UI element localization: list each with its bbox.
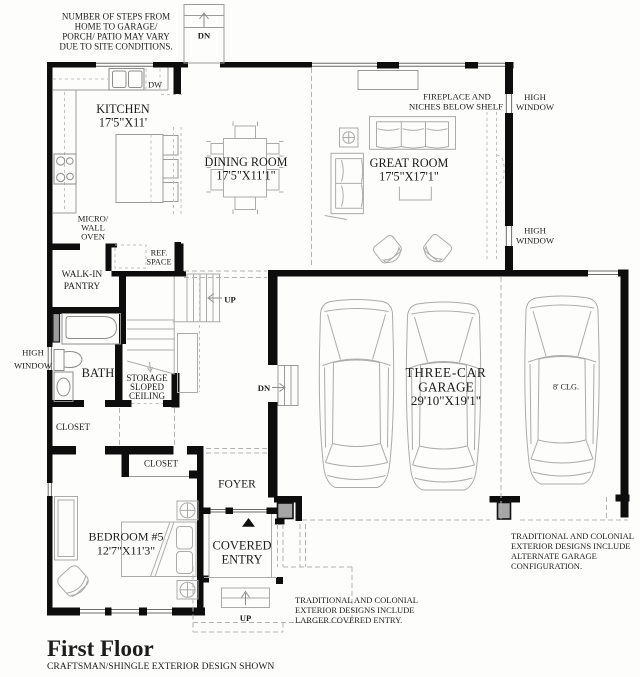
svg-text:HIGH: HIGH [22,348,44,358]
svg-text:DINING ROOM: DINING ROOM [205,155,288,169]
svg-text:17'5"X11': 17'5"X11' [99,116,147,130]
svg-text:GREAT ROOM: GREAT ROOM [370,156,449,170]
svg-text:UP: UP [224,295,235,305]
svg-text:DN: DN [258,383,271,393]
svg-text:SPACE: SPACE [146,258,171,267]
svg-text:WINDOW: WINDOW [516,236,555,246]
svg-text:DN: DN [198,31,211,41]
svg-text:COVERED: COVERED [212,539,271,553]
svg-text:CLOSET: CLOSET [144,459,179,469]
svg-text:17'5"X17'1": 17'5"X17'1" [379,170,439,184]
svg-text:ALTERNATE GARAGE: ALTERNATE GARAGE [511,551,597,561]
svg-text:17'5"X11'1": 17'5"X11'1" [216,169,275,183]
svg-text:LARGER COVERED ENTRY.: LARGER COVERED ENTRY. [295,615,402,625]
svg-text:BEDROOM #5: BEDROOM #5 [88,530,163,544]
svg-text:CONFIGURATION.: CONFIGURATION. [511,561,582,571]
svg-text:DUE TO SITE CONDITIONS.: DUE TO SITE CONDITIONS. [59,42,172,52]
svg-text:First Floor: First Floor [47,636,154,661]
svg-text:8' CLG.: 8' CLG. [553,383,579,392]
svg-text:HIGH: HIGH [524,226,546,236]
svg-text:HIGH: HIGH [524,92,546,102]
svg-text:WINDOW: WINDOW [14,361,53,371]
svg-text:CEILING: CEILING [129,391,165,401]
svg-text:29'10"X19'1": 29'10"X19'1" [411,393,481,408]
svg-text:DW: DW [148,81,162,90]
svg-text:EXTERIOR DESIGNS INCLUDE: EXTERIOR DESIGNS INCLUDE [295,605,414,615]
svg-text:ENTRY: ENTRY [222,553,263,567]
svg-text:OVEN: OVEN [81,232,106,242]
svg-text:CLOSET: CLOSET [56,422,91,432]
svg-text:FIREPLACE AND: FIREPLACE AND [423,92,491,102]
svg-text:NICHES BELOW SHELF: NICHES BELOW SHELF [409,102,503,112]
svg-text:12'7"X11'3": 12'7"X11'3" [97,544,155,558]
svg-text:FOYER: FOYER [218,479,256,491]
svg-text:WINDOW: WINDOW [516,102,555,112]
svg-text:TRADITIONAL AND COLONIAL: TRADITIONAL AND COLONIAL [295,595,418,605]
svg-text:PORCH/ PATIO MAY VARY: PORCH/ PATIO MAY VARY [62,32,170,42]
svg-text:BATH: BATH [82,366,115,380]
svg-text:REF.: REF. [151,249,168,258]
svg-text:EXTERIOR DESIGNS INCLUDE: EXTERIOR DESIGNS INCLUDE [511,541,630,551]
svg-text:UP: UP [240,613,251,623]
svg-text:PANTRY: PANTRY [64,282,101,292]
svg-text:KITCHEN: KITCHEN [96,102,150,116]
svg-text:TRADITIONAL AND COLONIAL: TRADITIONAL AND COLONIAL [511,531,634,541]
svg-text:WALK-IN: WALK-IN [62,270,103,280]
svg-text:THREE-CAR: THREE-CAR [406,365,487,380]
svg-text:CRAFTSMAN/SHINGLE EXTERIOR DES: CRAFTSMAN/SHINGLE EXTERIOR DESIGN SHOWN [47,661,274,672]
svg-text:NUMBER OF STEPS FROM: NUMBER OF STEPS FROM [62,12,170,22]
svg-text:HOME TO GARAGE/: HOME TO GARAGE/ [75,22,158,32]
